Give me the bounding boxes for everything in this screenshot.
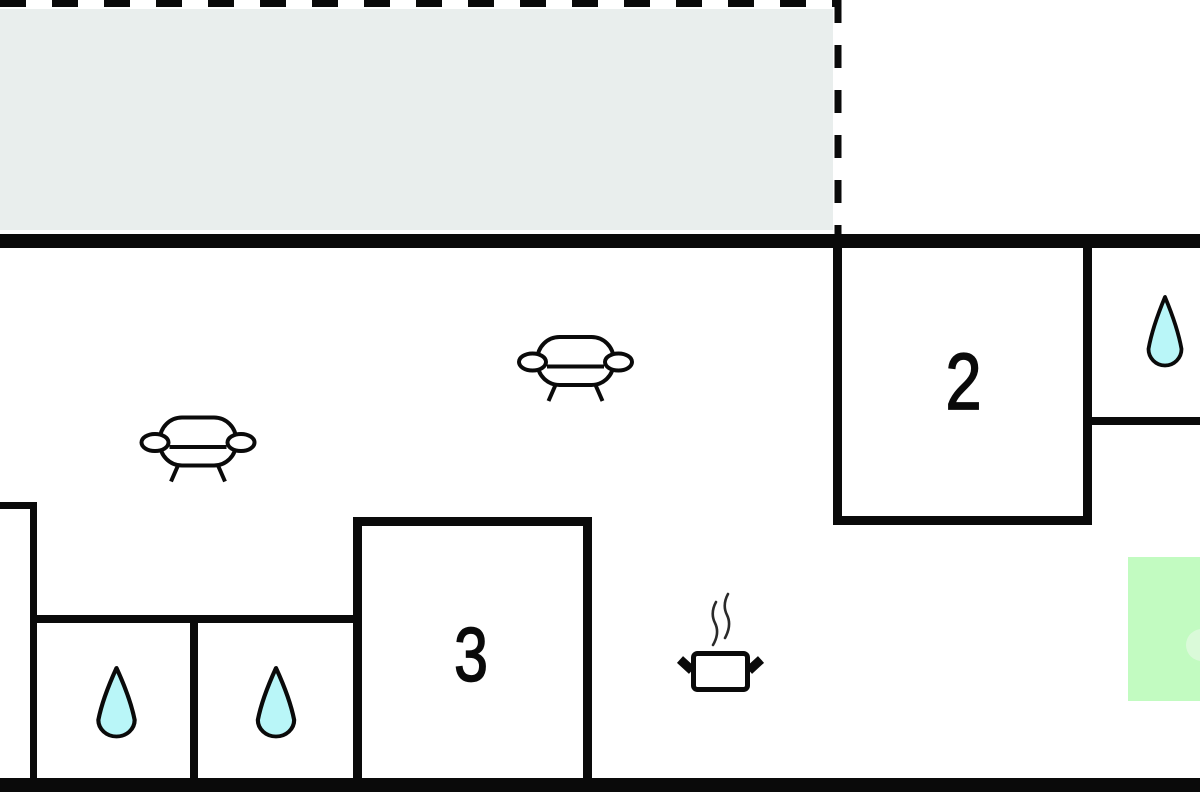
svg-text:3: 3: [454, 613, 488, 698]
svg-text:2: 2: [945, 338, 981, 427]
